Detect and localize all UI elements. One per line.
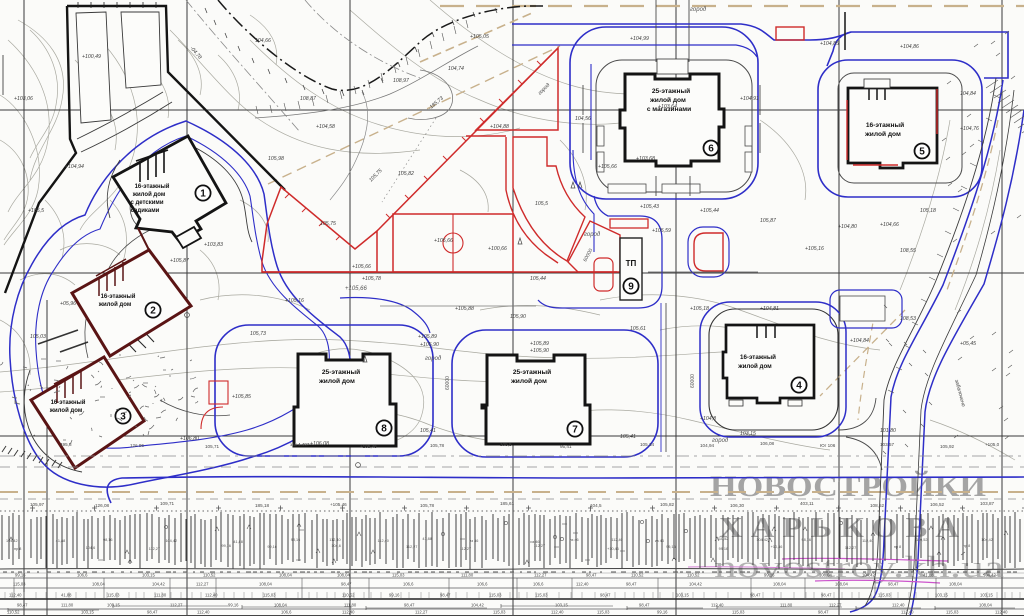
svg-text:112,40: 112,40 (378, 539, 389, 543)
svg-text:зак 4.497: зак 4.497 (290, 442, 310, 447)
svg-text:403,11: 403,11 (800, 501, 814, 506)
svg-text:115,03: 115,03 (13, 582, 26, 587)
svg-text:126,08: 126,08 (95, 503, 109, 508)
svg-text:105,5: 105,5 (535, 201, 548, 207)
svg-text:98,47: 98,47 (821, 593, 832, 598)
svg-text:+106,08: +106,08 (310, 441, 329, 447)
svg-text:104,42: 104,42 (152, 582, 165, 587)
svg-text:с детскими: с детскими (130, 200, 163, 206)
svg-text:110,52: 110,52 (7, 610, 20, 615)
svg-text:105,78: 105,78 (430, 443, 444, 448)
svg-text:пр 8: пр 8 (894, 545, 901, 549)
svg-text:110,52: 110,52 (717, 537, 728, 541)
svg-text:41,88: 41,88 (56, 539, 66, 543)
svg-text:108,97: 108,97 (393, 78, 410, 84)
svg-text:город: город (690, 7, 707, 13)
svg-text:16-этажный: 16-этажный (740, 354, 776, 361)
svg-text:1: 1 (200, 188, 206, 199)
svg-text:105,90: 105,90 (510, 314, 526, 320)
svg-text:99,16: 99,16 (222, 544, 232, 548)
svg-text:105,73: 105,73 (250, 331, 266, 337)
svg-text:103,87: 103,87 (980, 501, 994, 506)
svg-text:+105,89: +105,89 (418, 334, 437, 340)
svg-text:112,27: 112,27 (149, 547, 160, 551)
svg-text:115,03: 115,03 (263, 593, 276, 598)
svg-text:99,16: 99,16 (15, 573, 26, 578)
svg-text:пр 8: пр 8 (14, 547, 21, 551)
svg-text:112,27: 112,27 (415, 610, 428, 615)
svg-text:+104,8: +104,8 (700, 416, 716, 422)
svg-text:115,03: 115,03 (878, 593, 891, 598)
svg-text:2: 2 (150, 305, 156, 316)
svg-text:+05,45: +05,45 (960, 341, 976, 347)
svg-text:104,6: 104,6 (331, 544, 341, 548)
svg-text:106,30: 106,30 (730, 503, 744, 508)
svg-text:жилой дом: жилой дом (98, 301, 132, 308)
svg-text:+105,43: +105,43 (640, 204, 659, 210)
svg-text:105,97: 105,97 (30, 502, 44, 507)
svg-text:+104,84: +104,84 (850, 338, 869, 344)
svg-text:109,71: 109,71 (160, 501, 174, 506)
svg-text:+10,46: +10,46 (771, 545, 783, 549)
svg-text:+105,59: +105,59 (652, 228, 671, 234)
svg-text:103,15: 103,15 (142, 573, 155, 578)
svg-text:106,6: 106,6 (281, 610, 292, 615)
svg-text:жилой дом: жилой дом (132, 191, 166, 198)
svg-text:112,27: 112,27 (829, 603, 842, 608)
svg-text:112,40: 112,40 (901, 610, 914, 615)
svg-text:104,84: 104,84 (960, 91, 976, 97)
svg-text:99,16: 99,16 (389, 593, 400, 598)
svg-text:+105,46: +105,46 (330, 502, 347, 507)
svg-text:+104,76: +104,76 (960, 126, 979, 132)
svg-text:112,27: 112,27 (460, 547, 471, 551)
svg-text:111,80: 111,80 (780, 603, 793, 608)
svg-text:105,44: 105,44 (530, 276, 546, 282)
svg-text:+105,44: +105,44 (700, 208, 719, 214)
svg-text:25-этажный: 25-этажный (322, 368, 360, 376)
svg-text:115,03: 115,03 (535, 593, 548, 598)
svg-text:+105,88: +105,88 (455, 306, 474, 312)
svg-text:98,47: 98,47 (17, 603, 28, 608)
svg-text:+104,99: +104,99 (630, 36, 649, 42)
svg-text:+103,83: +103,83 (204, 242, 223, 248)
svg-text:+103,06: +103,06 (14, 96, 33, 102)
svg-text:105,34: 105,34 (640, 442, 654, 447)
svg-text:115,03: 115,03 (732, 610, 745, 615)
svg-text:+105,46: +105,46 (360, 444, 377, 449)
svg-text:115,03: 115,03 (489, 593, 502, 598)
svg-text:105,98: 105,98 (268, 156, 284, 162)
svg-text:99,16: 99,16 (666, 545, 676, 549)
svg-text:103,15: 103,15 (935, 593, 948, 598)
svg-text:6: 6 (708, 143, 714, 154)
svg-text:60000: 60000 (690, 374, 696, 388)
svg-text:111,80: 111,80 (344, 603, 357, 608)
svg-text:+105,18: +105,18 (690, 306, 709, 312)
svg-text:+104,80: +104,80 (838, 224, 857, 230)
svg-text:112,40: 112,40 (197, 610, 210, 615)
svg-text:104,74: 104,74 (448, 66, 464, 72)
svg-text:+105,05: +105,05 (470, 34, 489, 40)
svg-text:+105,66: +105,66 (434, 238, 453, 244)
svg-text:110,52: 110,52 (687, 573, 700, 578)
svg-text:112,40: 112,40 (611, 538, 622, 542)
svg-text:+105,90: +105,90 (420, 342, 439, 348)
svg-text:98,47: 98,47 (626, 582, 637, 587)
svg-text:108,04: 108,04 (279, 573, 292, 578)
svg-text:+105,89: +105,89 (530, 341, 549, 347)
svg-text:115,03: 115,03 (392, 573, 405, 578)
svg-text:жилой дом: жилой дом (864, 130, 901, 138)
svg-text:495,8: 495,8 (60, 442, 72, 447)
svg-text:108,55: 108,55 (900, 248, 916, 254)
svg-text:ТП: ТП (626, 259, 637, 268)
svg-text:60000: 60000 (445, 376, 451, 390)
svg-text:16-этажный: 16-этажный (866, 121, 904, 129)
svg-text:105,41: 105,41 (420, 428, 436, 434)
svg-text:из 46: из 46 (469, 539, 478, 543)
svg-text:+105,87: +105,87 (170, 258, 190, 264)
svg-text:112,40: 112,40 (892, 603, 905, 608)
svg-text:+104,86: +104,86 (900, 44, 919, 50)
svg-text:+105,78: +105,78 (362, 276, 381, 282)
svg-text:108,04: 108,04 (979, 603, 992, 608)
svg-text:98,16: 98,16 (291, 538, 301, 542)
svg-text:108,04: 108,04 (337, 573, 350, 578)
svg-text:105,71: 105,71 (205, 444, 219, 449)
svg-text:103,15: 103,15 (740, 431, 756, 437)
svg-text:108,04: 108,04 (835, 582, 848, 587)
svg-text:+100,66: +100,66 (488, 246, 507, 252)
svg-text:112,40: 112,40 (342, 610, 355, 615)
svg-text:7: 7 (572, 424, 578, 435)
svg-text:105,03: 105,03 (30, 334, 46, 340)
svg-text:108,04: 108,04 (949, 582, 962, 587)
svg-text:город: город (712, 438, 729, 444)
svg-text:98,47: 98,47 (147, 610, 158, 615)
svg-text:+104,85: +104,85 (820, 41, 839, 47)
svg-text:98,47: 98,47 (341, 582, 352, 587)
svg-text:41,88: 41,88 (923, 573, 934, 578)
svg-text:103,15: 103,15 (676, 593, 689, 598)
svg-text:103,57: 103,57 (880, 442, 894, 447)
svg-text:110,52: 110,52 (916, 538, 927, 542)
svg-text:9: 9 (628, 281, 634, 292)
svg-text:+105,66: +105,66 (598, 164, 617, 170)
svg-text:104,42: 104,42 (756, 538, 768, 542)
svg-text:111,80: 111,80 (154, 593, 167, 598)
svg-text:5: 5 (919, 146, 925, 157)
svg-text:112,27: 112,27 (170, 603, 183, 608)
svg-text:115,03: 115,03 (107, 593, 120, 598)
svg-text:112,27: 112,27 (406, 545, 417, 549)
svg-text:104,42: 104,42 (981, 538, 993, 542)
svg-text:112,40: 112,40 (576, 582, 589, 587)
svg-text:+105,0: +105,0 (985, 442, 1000, 447)
svg-text:112,27: 112,27 (196, 582, 209, 587)
svg-text:105,61: 105,61 (630, 326, 646, 332)
svg-text:99,16: 99,16 (719, 547, 729, 551)
svg-text:+05,96: +05,96 (60, 301, 76, 307)
svg-text:104,5: 104,5 (590, 503, 602, 508)
svg-text:жилой дом: жилой дом (649, 96, 686, 104)
svg-text:104,42: 104,42 (862, 573, 875, 578)
svg-text:108,04: 108,04 (259, 582, 272, 587)
svg-text:185,61: 185,61 (500, 501, 514, 506)
svg-text:98,16: 98,16 (103, 538, 113, 542)
svg-text:25-этажный: 25-этажный (652, 87, 690, 95)
svg-text:+104,88: +104,88 (490, 124, 509, 130)
svg-text:98,47: 98,47 (750, 593, 761, 598)
svg-text:98,47: 98,47 (818, 610, 829, 615)
svg-text:106,6: 106,6 (533, 582, 544, 587)
svg-text:106,6: 106,6 (477, 582, 488, 587)
svg-text:жилой дом: жилой дом (510, 377, 547, 385)
svg-text:103,15: 103,15 (980, 593, 993, 598)
svg-text:108,87: 108,87 (300, 96, 317, 102)
svg-text:104,42: 104,42 (165, 539, 177, 543)
svg-text:112,27: 112,27 (534, 573, 547, 578)
svg-text:110,52: 110,52 (342, 593, 355, 598)
svg-text:106,08: 106,08 (760, 441, 774, 446)
svg-text:104,42: 104,42 (689, 582, 702, 587)
svg-text:садиками: садиками (131, 208, 160, 214)
svg-text:111,80: 111,80 (61, 603, 74, 608)
svg-text:106,6: 106,6 (403, 582, 414, 587)
svg-text:106,52: 106,52 (930, 502, 944, 507)
svg-text:+10,46: +10,46 (607, 547, 619, 551)
svg-text:105,18: 105,18 (920, 208, 936, 214)
svg-text:98,47: 98,47 (404, 603, 415, 608)
svg-text:город: город (425, 356, 442, 362)
svg-text:115,03: 115,03 (946, 610, 959, 615)
svg-text:из 46: из 46 (655, 539, 664, 543)
svg-text:105,75: 105,75 (320, 221, 336, 227)
svg-text:98,47: 98,47 (600, 593, 611, 598)
svg-text:104,42: 104,42 (983, 573, 996, 578)
svg-text:95,41: 95,41 (560, 444, 572, 449)
svg-text:город: город (584, 232, 601, 238)
svg-text:жилой дом: жилой дом (318, 377, 355, 385)
svg-text:110,52: 110,52 (203, 573, 216, 578)
svg-text:115,03: 115,03 (597, 610, 610, 615)
svg-text:112,40: 112,40 (711, 603, 724, 608)
svg-text:112,40: 112,40 (9, 593, 22, 598)
svg-text:108,53: 108,53 (900, 316, 916, 322)
svg-text:16-этажный: 16-этажный (51, 399, 86, 406)
svg-text:99,16: 99,16 (267, 545, 277, 549)
svg-text:105,92: 105,92 (940, 444, 954, 449)
svg-text:105,87: 105,87 (760, 218, 777, 224)
svg-text:108,52: 108,52 (870, 503, 884, 508)
svg-text:+104,94: +104,94 (65, 164, 84, 170)
svg-text:НОВОСТРОЙКИ: НОВОСТРОЙКИ (710, 470, 986, 503)
svg-text:112,40: 112,40 (551, 610, 564, 615)
svg-text:110,52: 110,52 (631, 573, 644, 578)
svg-text:185,18: 185,18 (255, 503, 269, 508)
svg-text:105,82: 105,82 (398, 171, 414, 177)
svg-text:+105,66: +105,66 (345, 286, 368, 292)
svg-text:41,88: 41,88 (61, 593, 72, 598)
svg-text:106,6: 106,6 (77, 573, 88, 578)
svg-text:+103,64: +103,64 (658, 104, 677, 110)
svg-text:108,04: 108,04 (274, 603, 287, 608)
svg-text:Юг 106: Юг 106 (820, 443, 836, 448)
svg-text:+105,90: +105,90 (530, 348, 549, 354)
svg-text:115,03: 115,03 (493, 610, 506, 615)
svg-text:99,16: 99,16 (228, 603, 239, 608)
svg-text:+105,5: +105,5 (28, 208, 44, 214)
svg-text:4: 4 (796, 380, 802, 391)
svg-text:12в 96: 12в 96 (130, 443, 144, 448)
svg-text:+105,16: +105,16 (285, 298, 304, 304)
svg-text:жилой дом: жилой дом (737, 363, 772, 370)
svg-text:+100,49: +100,49 (82, 54, 101, 60)
svg-text:41,88: 41,88 (233, 540, 243, 544)
svg-text:101,80: 101,80 (880, 428, 896, 434)
svg-text:104,56: 104,56 (575, 116, 591, 122)
svg-text:105,82: 105,82 (660, 502, 674, 507)
svg-text:108,04: 108,04 (819, 573, 832, 578)
svg-text:98,47: 98,47 (888, 582, 899, 587)
svg-text:+104,91: +104,91 (740, 96, 759, 102)
svg-text:+105,85: +105,85 (232, 394, 251, 400)
svg-text:из 46: из 46 (569, 538, 578, 542)
svg-text:105,78: 105,78 (420, 503, 434, 508)
svg-text:8: 8 (381, 423, 387, 434)
svg-text:103,15: 103,15 (107, 603, 120, 608)
svg-text:+104,58: +104,58 (316, 124, 335, 130)
svg-text:104,42: 104,42 (6, 539, 18, 543)
svg-text:105,41: 105,41 (620, 434, 636, 440)
svg-text:111,80: 111,80 (461, 573, 474, 578)
svg-text:пр 8: пр 8 (963, 544, 970, 548)
svg-text:+103,68: +103,68 (636, 156, 655, 162)
svg-text:112,27: 112,27 (534, 544, 545, 548)
svg-text:3: 3 (120, 411, 126, 422)
svg-text:112,40: 112,40 (329, 538, 340, 542)
svg-text:103,15: 103,15 (555, 603, 568, 608)
svg-text:105,5: 105,5 (500, 442, 512, 447)
svg-text:25-этажный: 25-этажный (513, 368, 551, 376)
svg-text:98,47: 98,47 (586, 573, 597, 578)
svg-text:99,16: 99,16 (764, 573, 775, 578)
svg-text:98,47: 98,47 (639, 603, 650, 608)
svg-text:112,40: 112,40 (862, 539, 873, 543)
svg-text:112,40: 112,40 (205, 593, 218, 598)
svg-text:104,6: 104,6 (86, 546, 96, 550)
svg-text:+104,81: +104,81 (760, 306, 779, 312)
svg-text:+105,16: +105,16 (805, 246, 824, 252)
svg-text:16-этажный: 16-этажный (135, 183, 170, 190)
svg-text:112,40: 112,40 (995, 610, 1008, 615)
svg-text:112,27: 112,27 (845, 546, 856, 550)
svg-text:+104,66: +104,66 (880, 222, 899, 228)
svg-text:98,47: 98,47 (440, 593, 451, 598)
svg-text:108,04: 108,04 (773, 582, 786, 587)
svg-text:104,42: 104,42 (471, 603, 484, 608)
svg-text:+106,80: +106,80 (180, 436, 199, 442)
svg-text:103,15: 103,15 (81, 610, 94, 615)
svg-text:41,88: 41,88 (422, 537, 432, 541)
svg-text:жилой дом: жилой дом (49, 407, 83, 414)
svg-text:98,16: 98,16 (802, 538, 812, 542)
svg-text:104,66: 104,66 (255, 38, 271, 44)
svg-text:99,16: 99,16 (657, 610, 668, 615)
svg-text:108,04: 108,04 (92, 582, 105, 587)
svg-text:+105,66: +105,66 (352, 264, 371, 270)
svg-text:16-этажный: 16-этажный (101, 293, 136, 300)
